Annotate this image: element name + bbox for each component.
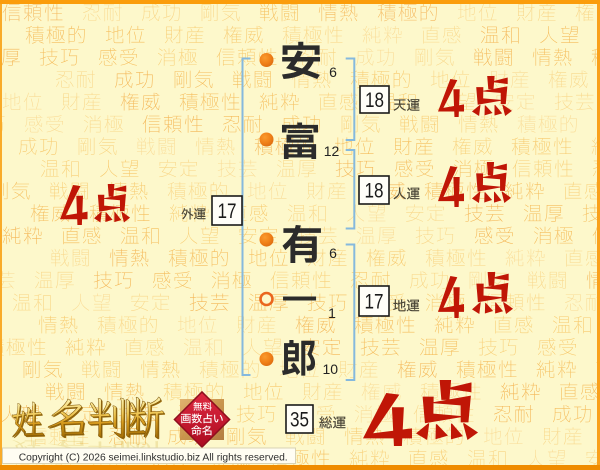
svg-text:18: 18	[365, 89, 384, 112]
svg-text:17: 17	[365, 291, 384, 314]
svg-text:18: 18	[365, 180, 384, 203]
svg-text:1: 1	[328, 305, 336, 321]
svg-text:6: 6	[329, 245, 337, 261]
svg-text:6: 6	[329, 64, 337, 80]
svg-text:17: 17	[218, 200, 237, 223]
svg-text:35: 35	[290, 409, 309, 432]
svg-text:10: 10	[323, 361, 339, 377]
svg-text:Copyright (C) 2026 seimei.link: Copyright (C) 2026 seimei.linkstudio.biz…	[19, 453, 288, 464]
svg-text:12: 12	[324, 143, 340, 159]
